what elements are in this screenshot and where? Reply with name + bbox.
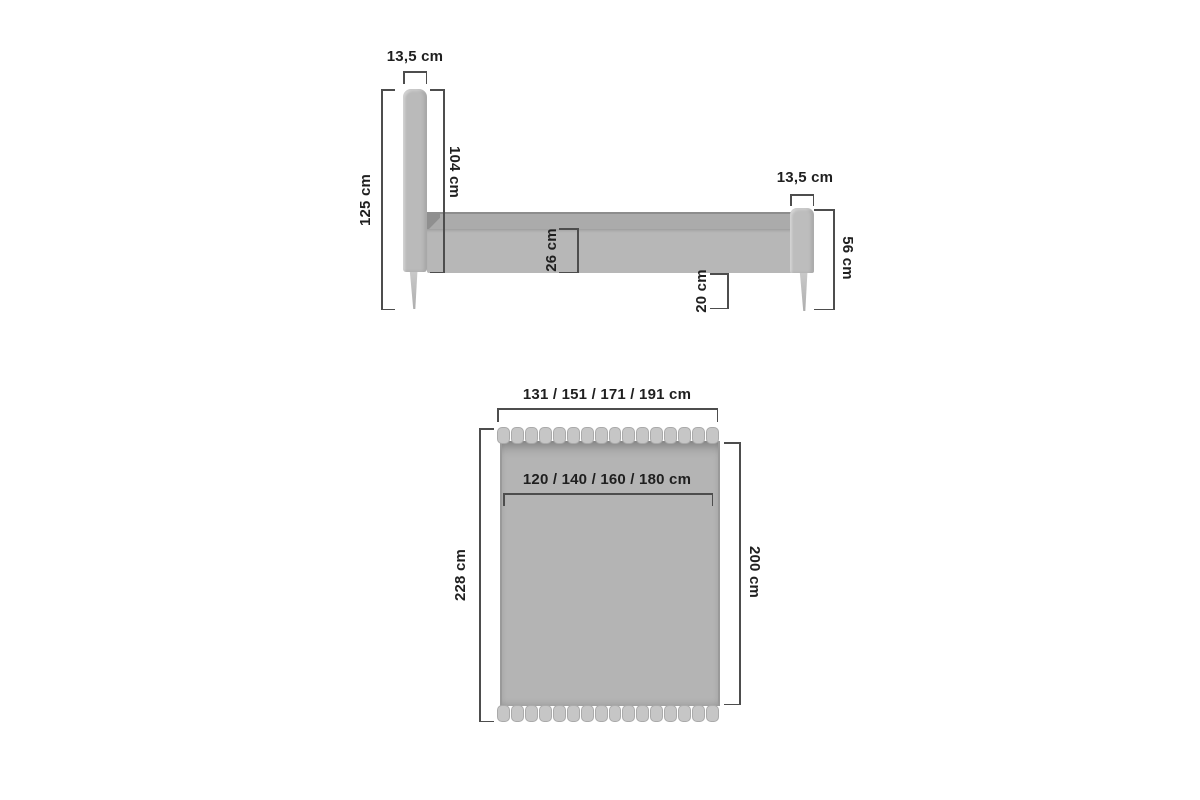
upholstery-slat <box>511 705 524 722</box>
dimension-tick <box>382 89 395 91</box>
headboard-leg <box>407 272 420 309</box>
dimension-line <box>577 228 579 273</box>
upholstery-slat <box>678 705 691 722</box>
dimension-tick <box>559 228 577 230</box>
dimension-tick <box>724 704 739 706</box>
upholstery-slat <box>511 427 524 444</box>
dimension-line <box>739 442 741 705</box>
upholstery-slat <box>692 705 705 722</box>
upholstery-slat <box>622 427 635 444</box>
dim-mattress-length-label: 200 cm <box>745 537 763 607</box>
dimension-tick <box>403 71 405 84</box>
dimension-tick <box>724 442 739 444</box>
upholstery-slat <box>664 705 677 722</box>
dimension-tick <box>710 308 727 310</box>
dimension-line <box>790 194 814 196</box>
upholstery-slat <box>525 427 538 444</box>
footboard-slat-row <box>497 705 719 722</box>
upholstery-slat <box>595 705 608 722</box>
dim-total-height-label: 125 cm <box>357 165 375 235</box>
headboard-slat-row <box>497 427 719 444</box>
upholstery-slat <box>581 705 594 722</box>
dim-overall-width-label: 131 / 151 / 171 / 191 cm <box>487 386 727 404</box>
upholstery-slat <box>553 427 566 444</box>
dimension-tick <box>790 194 792 206</box>
dimension-line <box>503 493 713 495</box>
upholstery-slat <box>650 705 663 722</box>
upholstery-slat <box>706 427 719 444</box>
diagram-canvas: 13,5 cm 125 cm 104 cm 26 cm <box>0 0 1200 800</box>
dim-overall-length-label: 228 cm <box>452 540 470 610</box>
dimension-tick <box>382 309 395 311</box>
dim-footboard-height-label: 56 cm <box>838 223 856 293</box>
dimension-line <box>381 89 383 310</box>
upholstery-slat <box>539 705 552 722</box>
dimension-line <box>497 408 718 410</box>
upholstery-slat <box>539 427 552 444</box>
dim-floor-clearance-label: 20 cm <box>693 256 711 326</box>
upholstery-slat <box>497 705 510 722</box>
upholstery-slat <box>622 705 635 722</box>
upholstery-slat <box>636 705 649 722</box>
upholstery-slat <box>609 427 622 444</box>
dimension-line <box>833 209 835 310</box>
upholstery-slat <box>706 705 719 722</box>
dimension-tick <box>813 194 815 206</box>
upholstery-slat <box>553 705 566 722</box>
dimension-tick <box>503 493 505 506</box>
dimension-tick <box>430 89 443 91</box>
dimension-tick <box>430 272 443 274</box>
dimension-tick <box>426 71 428 84</box>
dimension-tick <box>710 273 727 275</box>
dimension-tick <box>814 209 833 211</box>
dimension-tick <box>814 309 833 311</box>
upholstery-slat <box>497 427 510 444</box>
upholstery-slat <box>664 427 677 444</box>
upholstery-slat <box>567 705 580 722</box>
dimension-tick <box>559 272 577 274</box>
upholstery-slat <box>678 427 691 444</box>
upholstery-slat <box>581 427 594 444</box>
footboard-leg <box>797 273 810 311</box>
dim-mattress-width-label: 120 / 140 / 160 / 180 cm <box>487 471 727 489</box>
upholstery-slat <box>636 427 649 444</box>
dimension-tick <box>717 408 719 422</box>
dimension-line <box>727 273 729 309</box>
upholstery-slat <box>692 427 705 444</box>
dimension-tick <box>712 493 714 506</box>
dim-headboard-thickness-label: 13,5 cm <box>355 48 475 66</box>
upholstery-slat <box>650 427 663 444</box>
dimension-tick <box>497 408 499 422</box>
dimension-tick <box>480 721 494 723</box>
dim-frame-side-height-label: 26 cm <box>543 215 561 285</box>
dim-headboard-height-label: 104 cm <box>445 137 463 207</box>
dimension-line <box>403 71 427 73</box>
dim-footboard-thickness-label: 13,5 cm <box>745 169 865 187</box>
upholstery-slat <box>525 705 538 722</box>
dimension-tick <box>480 428 494 430</box>
frame-side-rail <box>427 229 792 273</box>
upholstery-slat <box>567 427 580 444</box>
footboard-side <box>790 208 814 273</box>
headboard-side <box>403 89 427 272</box>
upholstery-slat <box>609 705 622 722</box>
upholstery-slat <box>595 427 608 444</box>
dimension-line <box>479 428 481 722</box>
